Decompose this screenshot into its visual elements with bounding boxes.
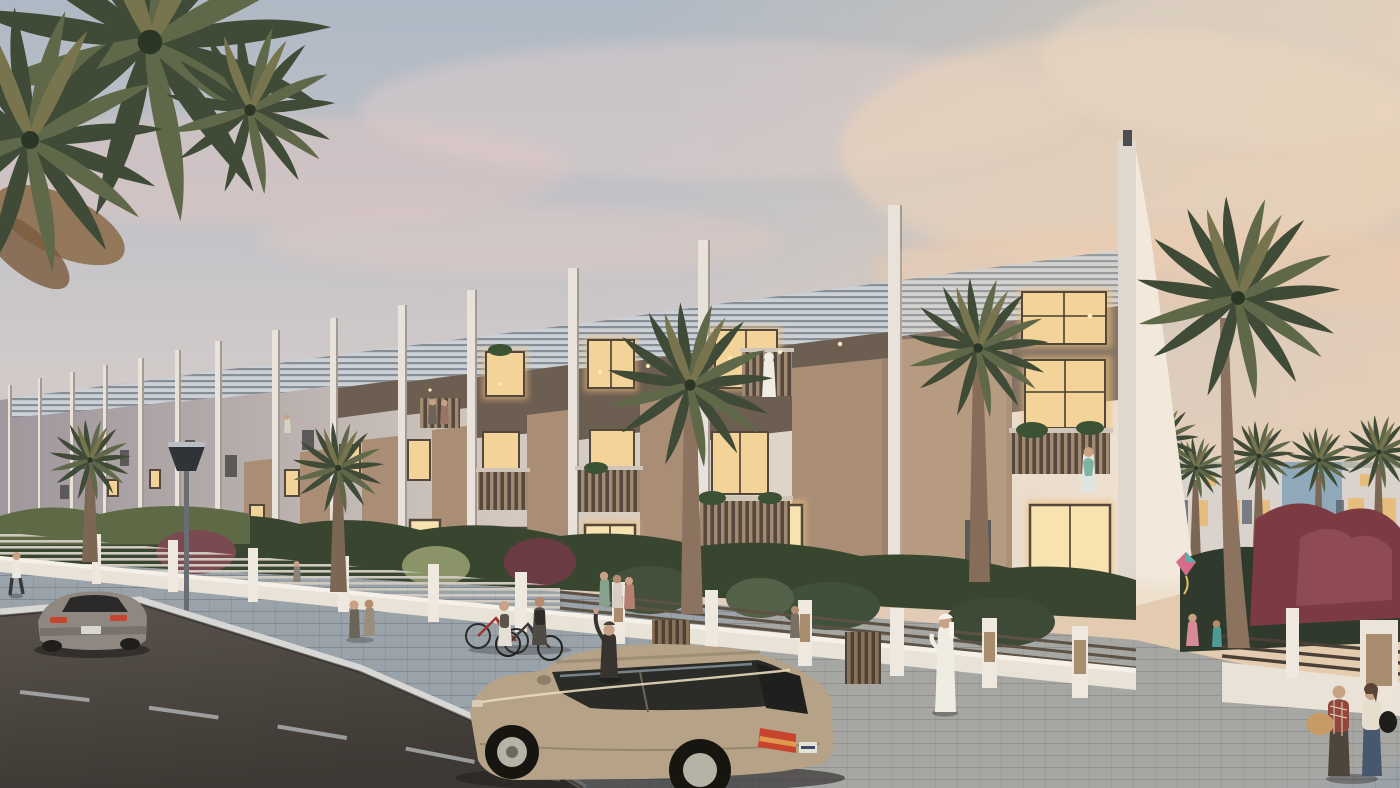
right-pillar [1286, 608, 1299, 678]
suv-mirror [537, 675, 551, 685]
sports-car-taillight-right [110, 615, 127, 621]
plum-bush-center [504, 538, 576, 586]
suv-headlight [472, 700, 483, 707]
yard-group [599, 572, 635, 609]
suv-rear-alloy [683, 753, 717, 787]
black-bag [1379, 711, 1397, 733]
child-at-gate [790, 606, 800, 638]
suv-plate-text [801, 746, 815, 749]
tan-bag [1306, 713, 1334, 735]
sports-car-wheel-left [42, 640, 62, 652]
suv-front-hub [506, 746, 518, 758]
woman-top [1362, 700, 1381, 730]
corner-fin-cap [1123, 130, 1132, 146]
render-svg [0, 0, 1400, 788]
scene: Dusk architectural rendering of a long r… [0, 0, 1400, 788]
corner-fin [1118, 140, 1136, 614]
red-tree-highlight [1296, 529, 1392, 606]
lamp-pole [184, 470, 189, 632]
right-gate-post-panel [1366, 634, 1392, 686]
sports-car-taillight-left [50, 617, 67, 623]
lamp-head-top [168, 442, 205, 447]
sports-car-plate [81, 626, 101, 634]
gate-2-slats [845, 632, 881, 684]
sports-car-wheel-right [120, 638, 140, 650]
